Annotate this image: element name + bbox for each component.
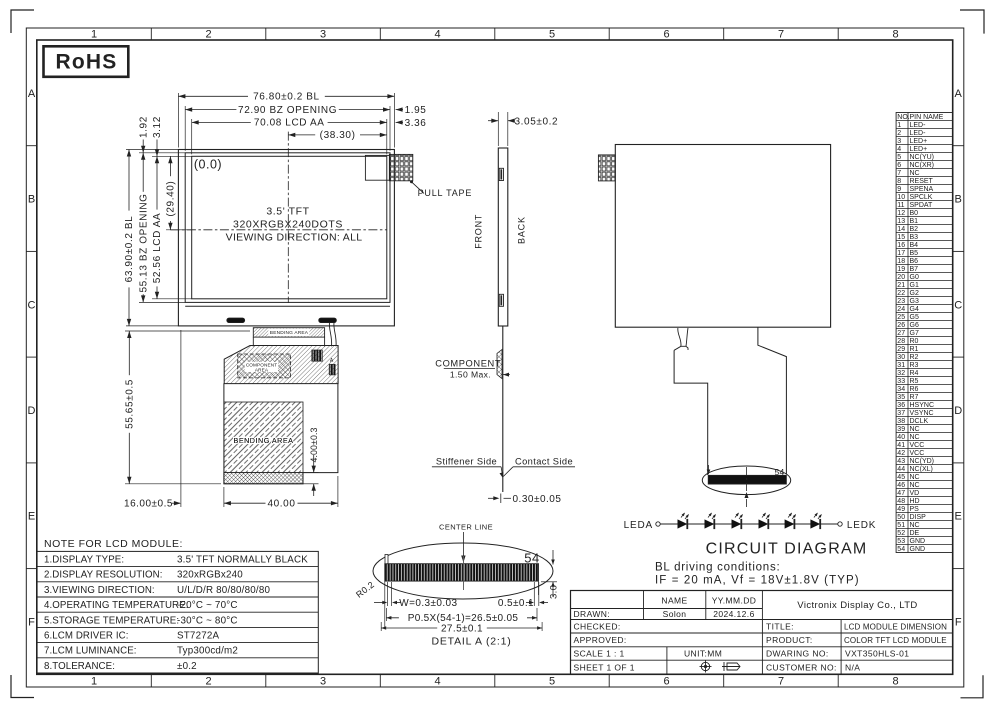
svg-text:54: 54 [524,551,539,566]
svg-text:29: 29 [897,346,905,353]
svg-text:3.05±0.2: 3.05±0.2 [515,116,559,127]
svg-text:DE: DE [910,530,920,537]
svg-text:LCD MODULE DIMENSION: LCD MODULE DIMENSION [844,623,947,632]
svg-text:3.5' TFT: 3.5' TFT [266,206,309,218]
svg-text:PIN NAME: PIN NAME [910,114,944,121]
svg-text:6: 6 [663,29,669,41]
svg-text:72.90 BZ OPENING: 72.90 BZ OPENING [238,105,337,116]
svg-text:Stiffener Side: Stiffener Side [436,457,497,467]
svg-text:VXT350HLS-01: VXT350HLS-01 [845,649,909,659]
svg-text:NC: NC [910,522,920,529]
svg-text:BACK: BACK [517,216,527,244]
svg-text:R6: R6 [910,386,919,393]
svg-text:SHEET 1 OF 1: SHEET 1 OF 1 [574,663,635,673]
svg-text:1.92: 1.92 [138,116,149,138]
svg-text:1: 1 [91,29,97,41]
svg-text:5: 5 [549,676,555,688]
svg-text:28: 28 [897,338,905,345]
svg-text:51: 51 [897,522,905,529]
svg-text:27: 27 [897,330,905,337]
svg-text:26: 26 [897,322,905,329]
svg-text:COMPONENT: COMPONENT [435,359,501,369]
svg-text:AREA: AREA [255,368,269,373]
svg-text:4: 4 [897,146,901,153]
svg-text:31: 31 [897,362,905,369]
svg-text:5: 5 [549,29,555,41]
svg-text:(29.40): (29.40) [166,181,177,217]
svg-text:7.LCM LUMINANCE:: 7.LCM LUMINANCE: [44,646,137,657]
svg-text:SPENA: SPENA [910,186,934,193]
svg-text:B: B [955,194,962,206]
svg-text:5: 5 [897,154,901,161]
svg-text:LEDA: LEDA [624,520,653,531]
svg-text:1: 1 [91,676,97,688]
svg-text:VIEWING DIRECTION: ALL: VIEWING DIRECTION: ALL [226,231,363,243]
svg-text:R0: R0 [910,338,919,345]
svg-text:VSYNC: VSYNC [910,410,934,417]
svg-text:RESET: RESET [910,178,934,185]
svg-text:COLOR TFT LCD MODULE: COLOR TFT LCD MODULE [844,636,947,645]
svg-text:2: 2 [205,676,211,688]
svg-text:19: 19 [897,266,905,273]
svg-text:G5: G5 [910,314,919,321]
svg-text:50: 50 [897,514,905,521]
svg-text:54: 54 [774,467,784,477]
svg-text:D: D [954,405,962,417]
svg-text:3: 3 [897,138,901,145]
svg-text:5.STORAGE TEMPERATURE:: 5.STORAGE TEMPERATURE: [44,615,179,626]
svg-text:55.65±0.5: 55.65±0.5 [124,379,135,429]
svg-text:4: 4 [434,676,440,688]
svg-text:B: B [28,194,35,206]
svg-text:GND: GND [910,546,926,553]
svg-text:NC(XL): NC(XL) [910,466,933,473]
svg-text:SCALE 1 : 1: SCALE 1 : 1 [574,649,625,659]
svg-text:TITLE:: TITLE: [766,622,794,632]
svg-text:DISP: DISP [910,514,927,521]
svg-text:10: 10 [897,194,905,201]
svg-text:34: 34 [897,386,905,393]
svg-text:NC: NC [910,426,920,433]
svg-text:0.30±0.05: 0.30±0.05 [513,494,562,505]
svg-text:Solon: Solon [663,609,687,619]
svg-text:U/L/D/R 80/80/80/80: U/L/D/R 80/80/80/80 [177,585,270,596]
svg-text:NC: NC [910,474,920,481]
svg-text:32: 32 [897,370,905,377]
svg-text:7: 7 [897,170,901,177]
svg-text:R7: R7 [910,394,919,401]
svg-text:13: 13 [897,218,905,225]
svg-text:DWARING NO:: DWARING NO: [766,649,829,659]
svg-text:SPDAT: SPDAT [910,202,934,209]
svg-text:G2: G2 [910,290,919,297]
svg-text:DCLK: DCLK [910,418,929,425]
svg-text:6.LCM DRIVER IC:: 6.LCM DRIVER IC: [44,631,129,642]
svg-text:VCC: VCC [910,450,925,457]
svg-text:PULL TAPE: PULL TAPE [418,188,473,198]
svg-text:N/A: N/A [845,663,860,673]
svg-text:B0: B0 [910,210,919,217]
svg-text:FRONT: FRONT [474,214,484,249]
svg-text:NC: NC [910,482,920,489]
svg-text:BL driving conditions:: BL driving conditions: [655,562,780,574]
svg-text:49: 49 [897,506,905,513]
svg-text:G3: G3 [910,298,919,305]
svg-text:11: 11 [897,202,904,209]
svg-text:35: 35 [897,394,905,401]
svg-text:Typ300cd/m2: Typ300cd/m2 [177,646,238,657]
svg-text:1.DISPLAY TYPE:: 1.DISPLAY TYPE: [44,555,124,566]
svg-text:LEDK: LEDK [847,520,876,531]
svg-text:GND: GND [910,538,926,545]
svg-text:3.VIEWING DIRECTION:: 3.VIEWING DIRECTION: [44,585,155,596]
svg-text:R5: R5 [910,378,919,385]
svg-text:R1: R1 [910,346,919,353]
svg-text:12: 12 [897,210,905,217]
svg-text:40.00: 40.00 [267,498,295,509]
svg-text:3.0: 3.0 [548,585,559,599]
svg-text:G1: G1 [910,282,919,289]
svg-text:E: E [955,511,962,523]
svg-text:9: 9 [897,186,901,193]
svg-text:15: 15 [897,234,905,241]
svg-text:18: 18 [897,258,905,265]
svg-text:320xRGBx240: 320xRGBx240 [177,570,243,581]
svg-text:52.56 LCD AA: 52.56 LCD AA [152,213,163,284]
svg-text:B3: B3 [910,234,919,241]
svg-text:24: 24 [897,306,905,313]
svg-text:LED-: LED- [910,122,927,129]
svg-text:43: 43 [897,458,905,465]
svg-text:41: 41 [897,442,905,449]
svg-text:30: 30 [897,354,905,361]
svg-text:27.5±0.1: 27.5±0.1 [441,623,483,634]
svg-text:55.13 BZ OPENING: 55.13 BZ OPENING [138,193,149,292]
svg-text:48: 48 [897,498,905,505]
svg-text:Victronix Display Co., LTD: Victronix Display Co., LTD [797,600,917,611]
svg-text:2: 2 [205,29,211,41]
svg-text:8: 8 [892,676,898,688]
svg-text:B1: B1 [910,218,919,225]
svg-text:F: F [28,616,35,628]
svg-text:B5: B5 [910,250,919,257]
svg-text:NOTE FOR LCD MODULE:: NOTE FOR LCD MODULE: [44,538,183,550]
svg-text:E: E [28,511,35,523]
svg-text:NC(YU): NC(YU) [910,154,935,161]
svg-text:3: 3 [320,29,326,41]
svg-text:3.12: 3.12 [152,116,163,138]
svg-text:CHECKED:: CHECKED: [574,622,621,632]
svg-text:45: 45 [897,474,905,481]
svg-text:(38.30): (38.30) [320,130,356,141]
svg-text:B4: B4 [910,242,919,249]
svg-text:HD: HD [910,498,920,505]
svg-text:NAME: NAME [661,596,687,606]
svg-text:-30°C ~ 80°C: -30°C ~ 80°C [177,615,238,626]
svg-text:2: 2 [897,130,901,137]
svg-text:BENDING AREA: BENDING AREA [270,330,309,336]
svg-text:-20°C ~ 70°C: -20°C ~ 70°C [177,600,238,611]
svg-text:1.95: 1.95 [405,105,427,116]
svg-text:VD: VD [910,490,920,497]
svg-text:UNIT:MM: UNIT:MM [684,649,722,659]
svg-text:16: 16 [897,242,905,249]
svg-text:CENTER LINE: CENTER LINE [439,523,493,532]
svg-text:0.5±0.1: 0.5±0.1 [498,598,534,609]
svg-text:8: 8 [897,178,901,185]
svg-text:R2: R2 [910,354,919,361]
svg-text:38: 38 [897,418,905,425]
svg-text:NC: NC [910,170,920,177]
svg-text:23: 23 [897,298,905,305]
svg-text:BENDING AREA: BENDING AREA [234,436,294,445]
svg-text:21: 21 [897,282,905,289]
svg-text:4: 4 [434,29,440,41]
svg-text:3: 3 [320,676,326,688]
svg-text:NC(YD): NC(YD) [910,458,935,465]
svg-text:A: A [28,88,36,100]
svg-text:LED+: LED+ [910,138,928,145]
svg-text:D: D [28,405,36,417]
svg-text:6: 6 [897,162,901,169]
svg-text:39: 39 [897,426,905,433]
svg-text:PS: PS [910,506,920,513]
svg-text:ST7272A: ST7272A [177,631,220,642]
svg-text:LED+: LED+ [910,146,928,153]
svg-text:G4: G4 [910,306,919,313]
svg-text:36: 36 [897,402,905,409]
svg-text:G6: G6 [910,322,919,329]
svg-text:7: 7 [778,676,784,688]
svg-text:63.90±0.2 BL: 63.90±0.2 BL [124,216,135,283]
svg-text:46: 46 [897,482,905,489]
svg-text:1.50 Max.: 1.50 Max. [450,370,491,380]
svg-text:76.80±0.2 BL: 76.80±0.2 BL [253,92,320,103]
svg-text:±0.2: ±0.2 [177,661,197,672]
svg-text:NC(XR): NC(XR) [910,162,935,169]
svg-text:G7: G7 [910,330,919,337]
svg-text:16.00±0.5: 16.00±0.5 [124,498,173,509]
svg-text:NC: NC [910,434,920,441]
svg-text:25: 25 [897,314,905,321]
svg-text:IF = 20 mA, Vf = 18V±1.8V (TYP: IF = 20 mA, Vf = 18V±1.8V (TYP) [655,575,860,587]
svg-text:22: 22 [897,290,905,297]
svg-text:LED-: LED- [910,130,927,137]
svg-text:4.OPERATING TEMPERATURE:: 4.OPERATING TEMPERATURE: [44,600,189,611]
svg-text:2024.12.6: 2024.12.6 [713,609,754,619]
svg-text:54: 54 [897,546,905,553]
svg-text:(0.0): (0.0) [194,158,222,172]
svg-text:1: 1 [897,122,901,129]
svg-text:HSYNC: HSYNC [910,402,935,409]
svg-text:VCC: VCC [910,442,925,449]
svg-text:B2: B2 [910,226,919,233]
svg-text:8.TOLERANCE:: 8.TOLERANCE: [44,661,115,672]
svg-text:4.00±0.3: 4.00±0.3 [309,428,319,463]
svg-text:Contact Side: Contact Side [515,457,573,467]
svg-text:R4: R4 [910,370,919,377]
svg-text:53: 53 [897,538,905,545]
svg-text:YY.MM.DD: YY.MM.DD [712,596,757,606]
svg-text:17: 17 [897,250,905,257]
svg-text:CIRCUIT DIAGRAM: CIRCUIT DIAGRAM [706,541,868,558]
svg-text:6: 6 [663,676,669,688]
svg-text:SPCLK: SPCLK [910,194,933,201]
svg-text:R3: R3 [910,362,919,369]
svg-text:C: C [28,299,36,311]
svg-text:G0: G0 [910,274,919,281]
svg-text:B6: B6 [910,258,919,265]
svg-text:B7: B7 [910,266,919,273]
svg-text:14: 14 [897,226,905,233]
svg-text:3.5' TFT NORMALLY BLACK: 3.5' TFT NORMALLY BLACK [177,555,308,566]
svg-text:70.08 LCD AA: 70.08 LCD AA [254,118,325,129]
svg-text:DRAWN:: DRAWN: [574,609,611,619]
svg-text:NO.: NO. [897,114,910,121]
svg-text:20: 20 [897,274,905,281]
svg-text:RoHS: RoHS [56,51,118,74]
svg-text:33: 33 [897,378,905,385]
svg-text:PRODUCT:: PRODUCT: [766,635,813,645]
svg-text:APPROVED:: APPROVED: [574,635,627,645]
svg-text:37: 37 [897,410,905,417]
svg-text:42: 42 [897,450,905,457]
svg-text:W=0.3±0.03: W=0.3±0.03 [399,598,457,609]
svg-text:3.36: 3.36 [405,118,427,129]
svg-text:52: 52 [897,530,905,537]
svg-text:40: 40 [897,434,905,441]
svg-text:F: F [955,616,962,628]
svg-text:DETAIL A (2:1): DETAIL A (2:1) [431,636,511,648]
svg-text:7: 7 [778,29,784,41]
svg-text:320XRGBX240DOTS: 320XRGBX240DOTS [233,218,343,230]
svg-text:44: 44 [897,466,905,473]
svg-text:C: C [954,299,962,311]
svg-text:2.DISPLAY RESOLUTION:: 2.DISPLAY RESOLUTION: [44,570,163,581]
svg-text:8: 8 [892,29,898,41]
svg-text:47: 47 [897,490,905,497]
svg-text:CUSTOMER NO:: CUSTOMER NO: [766,663,837,673]
svg-text:A: A [955,88,963,100]
